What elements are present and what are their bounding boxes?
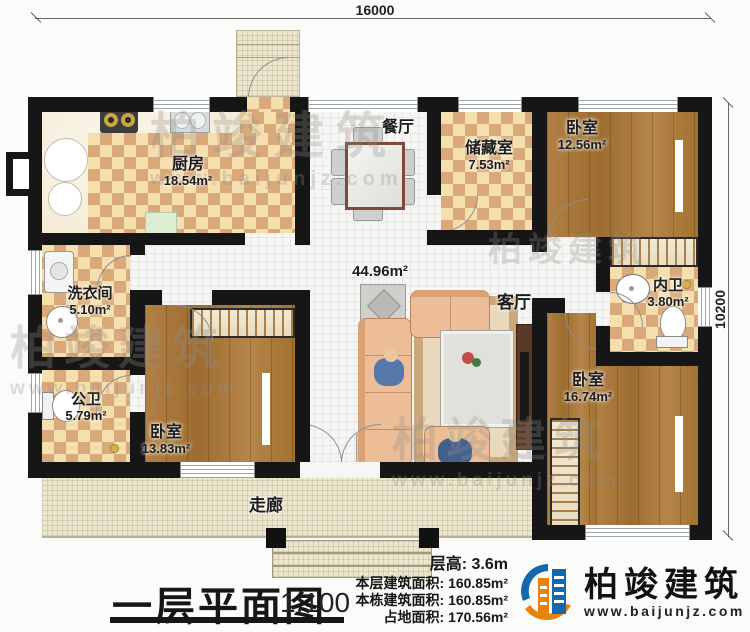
dimension-right-line [728, 103, 729, 537]
info-label: 占地面积: [384, 609, 445, 625]
coffee-table [440, 330, 514, 428]
porch-doorway-floor [247, 97, 290, 112]
room-label-bedroom-right: 卧室 16.74m² [564, 372, 612, 404]
info-block: 层高: 3.6m 本层建筑面积: 160.85m² 本栋建筑面积: 160.85… [338, 555, 508, 626]
wall-inner-bath-left [596, 326, 610, 352]
room-name: 客厅 [497, 294, 531, 313]
room-area: 5.10m² [69, 303, 110, 317]
dimension-top-line [35, 18, 711, 19]
room-area: 18.54m² [164, 174, 212, 188]
person-head [384, 348, 398, 362]
person-torso [374, 358, 404, 386]
room-area: 5.79m² [65, 409, 106, 423]
sink-basin [190, 112, 206, 129]
wall-bedroom-right-top [547, 298, 565, 313]
info-value: 3.6m [472, 556, 508, 573]
info-line: 本层建筑面积: 160.85m² [338, 575, 508, 592]
brand-logo: 柏竣建筑 www.baijunjz.com [518, 560, 745, 627]
sink-drain [629, 286, 634, 291]
room-label-living: 客厅 [497, 294, 531, 313]
round-table [44, 138, 88, 182]
room-name: 走廊 [249, 497, 283, 516]
sink-drain [58, 318, 63, 323]
round-table [48, 182, 82, 216]
room-area: 16.74m² [564, 390, 612, 404]
blanket-fold [675, 416, 683, 492]
wall-storage-left [427, 112, 441, 195]
room-name: 餐厅 [382, 119, 414, 137]
blanket-fold [262, 373, 270, 445]
light-pull [110, 444, 119, 453]
info-value: 160.85m² [448, 592, 508, 608]
toilet-bowl [660, 306, 686, 340]
brand-url: www.baijunjz.com [584, 603, 745, 619]
room-label-kitchen: 厨房 18.54m² [164, 156, 212, 188]
room-area: 7.53m² [468, 158, 509, 172]
porch-column [419, 528, 439, 548]
room-area: 12.56m² [558, 138, 606, 152]
porch-step-line [236, 57, 300, 58]
wall-bedroom-top-left [532, 112, 547, 252]
room-name: 洗衣间 [67, 286, 112, 303]
kitchen-floor [240, 112, 295, 133]
chimney [6, 152, 36, 196]
room-name: 卧室 [150, 424, 182, 442]
room-label-dining: 餐厅 [382, 119, 414, 137]
window [578, 97, 678, 112]
person-head [448, 428, 462, 442]
room-label-public-bath: 公卫 5.79m² [65, 392, 106, 423]
room-area: 44.96m² [352, 264, 408, 281]
dimension-top-label: 16000 [345, 2, 405, 18]
living-area-value: 44.96m² [352, 264, 408, 281]
room-label-inner-bath: 内卫 3.80m² [647, 278, 688, 309]
window [28, 250, 42, 295]
info-label: 层高: [430, 556, 467, 573]
window [698, 287, 712, 327]
room-label-laundry: 洗衣间 5.10m² [67, 286, 112, 317]
flower-decor [472, 358, 481, 367]
wardrobe [610, 237, 698, 267]
wall-laundry-right [130, 233, 145, 255]
entry-step [272, 540, 432, 553]
brand-logo-icon [518, 560, 576, 627]
room-area: 3.80m² [647, 295, 688, 309]
room-label-storage: 储藏室 7.53m² [465, 140, 513, 172]
wall-bedroom-left-top [130, 290, 162, 305]
dining-table [345, 142, 405, 210]
tv [520, 352, 529, 422]
blanket-fold [675, 140, 683, 212]
brand-name: 柏竣建筑 [584, 568, 745, 604]
wardrobe [550, 418, 580, 532]
info-value: 160.85m² [448, 575, 508, 591]
window [585, 525, 690, 540]
dining-chair [353, 127, 383, 143]
window [180, 462, 255, 478]
room-label-bedroom-left: 卧室 13.83m² [142, 424, 190, 456]
room-label-corridor: 走廊 [249, 497, 283, 516]
porch-step-line [236, 44, 300, 45]
wall-kitchen-right [295, 112, 310, 245]
wall-bedroom-right-left [532, 298, 547, 540]
dining-chair [331, 178, 346, 205]
room-name: 储藏室 [465, 140, 513, 158]
room-name: 卧室 [572, 372, 604, 390]
info-value: 170.56m² [448, 609, 508, 625]
toilet-tank [656, 336, 688, 348]
room-label-bedroom-top: 卧室 12.56m² [558, 120, 606, 152]
washer-door [50, 262, 68, 280]
room-name: 厨房 [172, 156, 204, 174]
room-name: 公卫 [71, 392, 101, 409]
room-name: 内卫 [653, 278, 683, 295]
wall-bedroom-top-bottom [596, 237, 610, 292]
wall-inner-bath-bottom [596, 352, 712, 366]
wall-laundry-bath-divider [28, 357, 130, 370]
cutting-board [145, 212, 177, 235]
info-line: 占地面积: 170.56m² [338, 609, 508, 626]
info-line: 层高: 3.6m [338, 555, 508, 575]
corridor-floor [42, 478, 532, 538]
dining-chair [331, 149, 346, 176]
room-area: 13.83m² [142, 442, 190, 456]
wall-exterior-bottom [28, 462, 545, 478]
window [153, 97, 210, 112]
room-name: 卧室 [566, 120, 598, 138]
porch-column [266, 528, 286, 548]
sink-basin [174, 112, 190, 129]
dimension-right-label: 10200 [712, 290, 728, 329]
wall-storage-bottom [427, 230, 547, 245]
window [28, 373, 42, 413]
wall-bedroom-left-right [295, 290, 310, 462]
window [458, 97, 522, 112]
stove-burner [121, 113, 135, 127]
window [308, 97, 418, 112]
stove-burner [104, 113, 118, 127]
info-line: 本栋建筑面积: 160.85m² [338, 592, 508, 609]
info-label: 本栋建筑面积: [356, 592, 445, 608]
entry-door-opening [300, 462, 380, 478]
info-label: 本层建筑面积: [356, 575, 445, 591]
floor-plan-sheet: 16000 10200 [0, 0, 750, 632]
